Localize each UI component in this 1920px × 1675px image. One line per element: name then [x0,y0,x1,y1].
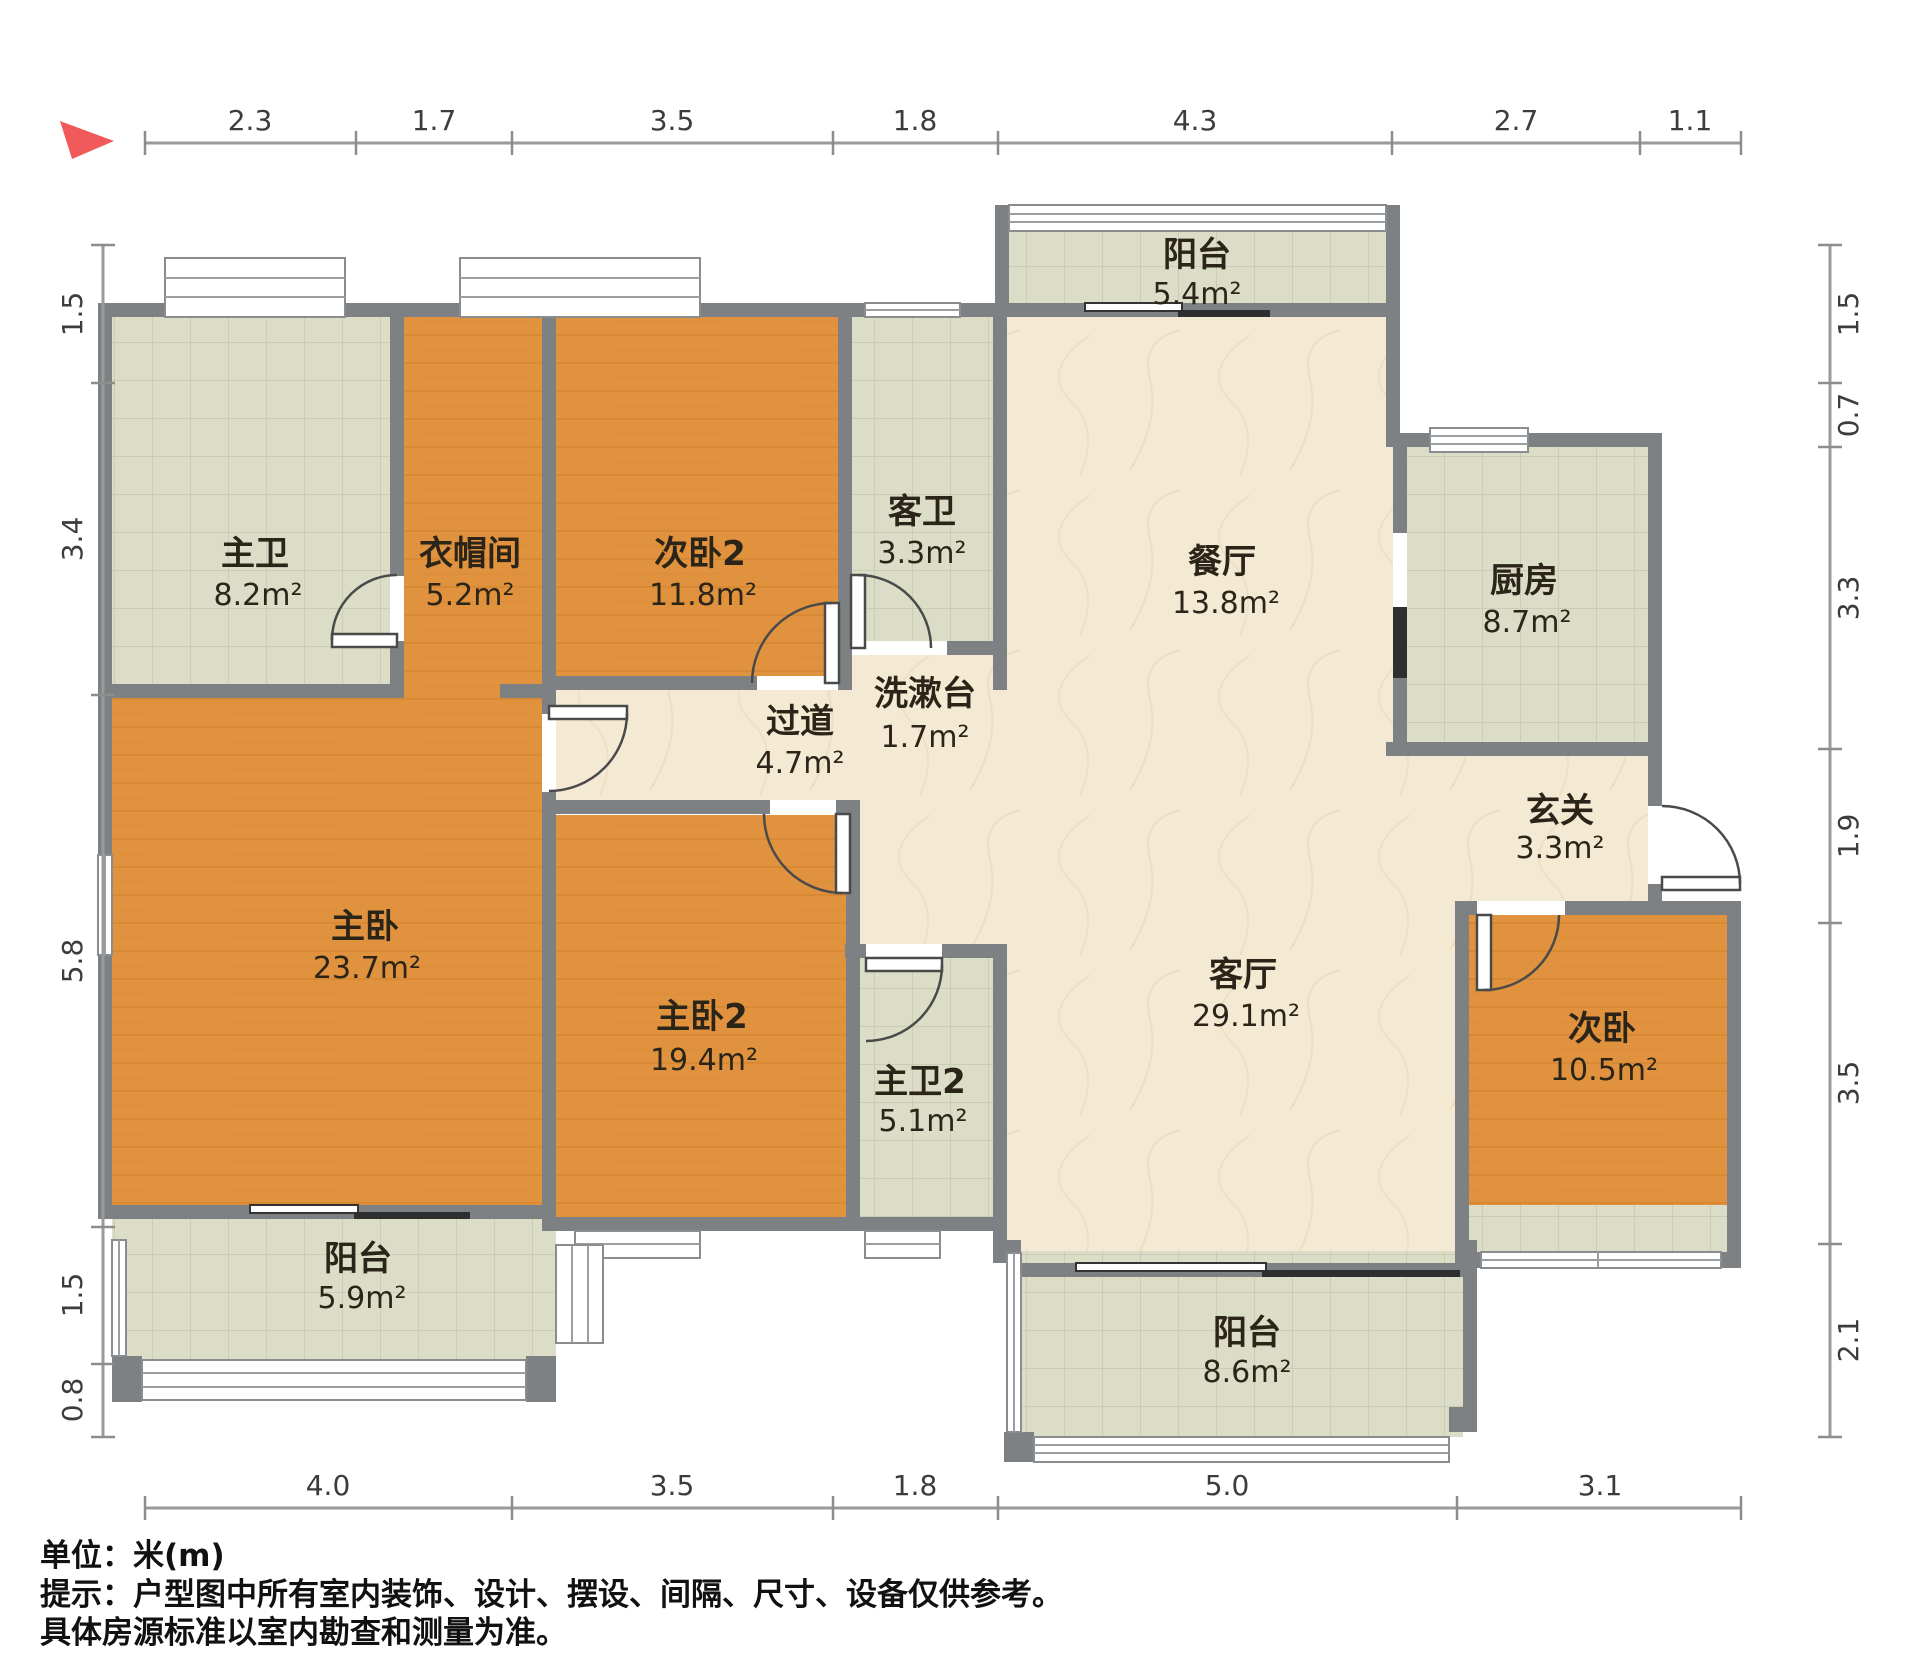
dim-left-1: 1.5 [56,292,89,337]
room-area-washstand: 1.7m² [881,720,970,755]
room-area-cloakroom: 5.2m² [426,578,515,613]
post-balcony-bottom-a [1004,1240,1021,1254]
kitchen-flue [1393,607,1407,678]
wall-kitchen-bottom [1386,742,1662,756]
window-balcony-left-east [556,1245,603,1343]
dim-top-7: 1.1 [1668,104,1713,137]
window-guest-bath [865,303,960,317]
room-area-bedroom2: 10.5m² [1550,1053,1658,1088]
window-balcony-left-rail [142,1360,526,1400]
room-label-guest-bath: 客卫 [888,492,956,532]
room-label-living: 客厅 [1209,955,1277,995]
opening-kitchen-window [1393,533,1407,607]
north-arrow-icon [60,121,114,159]
window-master-bath2-under [865,1231,940,1258]
dim-bottom-1: 4.0 [306,1469,351,1502]
room-label-master-bedroom2: 主卧2 [656,997,748,1037]
room-label-foyer: 玄关 [1526,791,1594,831]
opening-bedroom2 [1477,901,1565,915]
post-balcony-top-left [995,205,1009,317]
post-bay-right [1721,1252,1741,1268]
dim-top-4: 1.8 [893,104,938,137]
floorplan-page: 阳台 5.4m² 主卫 8.2m² 衣帽间 5.2m² 次卧2 11.8m² 客… [0,0,1920,1675]
dim-bottom-4: 5.0 [1205,1469,1250,1502]
room-area-foyer: 3.3m² [1516,831,1605,866]
window-master-bath-bay [165,258,345,317]
dim-left-4: 1.5 [56,1273,89,1318]
room-bedroom2-2-floor [556,317,838,676]
dim-top-3: 3.5 [650,104,695,137]
wall-bedroom2-right [1727,901,1741,1268]
room-label-washstand: 洗漱台 [874,674,976,714]
room-area-dining: 13.8m² [1172,586,1280,621]
dim-left-5: 0.8 [56,1378,89,1423]
dim-right-6: 2.1 [1832,1318,1865,1363]
dim-right-4: 1.9 [1832,814,1865,859]
wall-dining-right-upper [1386,303,1400,447]
room-area-living: 29.1m² [1192,999,1300,1034]
opening-master-bedroom [542,714,556,792]
wall-left-outer [98,303,112,1219]
footer-notes: 单位：米(m) 提示：户型图中所有室内装饰、设计、摆设、间隔、尺寸、设备仅供参考… [40,1538,1063,1651]
wall-bedroom2-left [1455,901,1469,1263]
note-unit: 单位：米(m) [40,1538,225,1574]
room-label-kitchen: 厨房 [1490,561,1558,601]
room-label-hallway: 过道 [766,702,834,742]
room-area-guest-bath: 3.3m² [878,536,967,571]
post-balcony-left-b [526,1356,556,1402]
window-master-bedroom-left [98,855,112,955]
window-bedroom2-2-bay [460,258,700,317]
room-area-balcony-top: 5.4m² [1153,277,1242,312]
post-balcony-bottom-b [1004,1432,1034,1462]
dim-top-1: 2.3 [228,104,273,137]
wall-master-bath2-left [846,958,860,1231]
room-label-balcony-bottom: 阳台 [1213,1313,1281,1353]
room-label-balcony-top: 阳台 [1163,235,1231,275]
room-label-master-bedroom: 主卧 [331,907,399,947]
opening-master-bath2 [866,944,942,958]
dim-top-2: 1.7 [412,104,457,137]
room-area-kitchen: 8.7m² [1483,605,1572,640]
room-area-master-bedroom: 23.7m² [313,951,421,986]
room-area-balcony-bottom: 8.6m² [1203,1355,1292,1390]
room-label-balcony-left: 阳台 [324,1239,392,1279]
post-bay-left [1469,1252,1481,1268]
room-label-bedroom2: 次卧 [1568,1009,1636,1049]
opening-master-bedroom2 [770,800,836,814]
room-dining-living-floor [1007,317,1393,1263]
dim-bottom-3: 1.8 [893,1469,938,1502]
room-area-master-bath: 8.2m² [214,578,303,613]
window-balcony-top-rail [1009,205,1386,231]
room-area-master-bath2: 5.1m² [879,1104,968,1139]
room-area-hallway: 4.7m² [756,746,845,781]
dimension-bottom: 4.0 3.5 1.8 5.0 3.1 [145,1469,1741,1520]
dimension-top: 2.3 1.7 3.5 1.8 4.3 2.7 1.1 [145,104,1741,155]
door-entry [1662,806,1740,890]
window-kitchen [1430,428,1528,452]
room-area-bedroom2-2: 11.8m² [649,578,757,613]
room-label-master-bath2: 主卫2 [874,1062,966,1102]
dim-right-5: 3.5 [1832,1061,1865,1106]
note-tip-line1: 提示：户型图中所有室内装饰、设计、摆设、间隔、尺寸、设备仅供参考。 [40,1577,1063,1613]
dim-bottom-2: 3.5 [650,1469,695,1502]
room-master-bath-floor [112,317,390,684]
dim-right-3: 3.3 [1832,576,1865,621]
room-cloakroom-floor [404,317,542,684]
room-area-balcony-left: 5.9m² [318,1281,407,1316]
window-bedroom2-bay [1481,1252,1721,1268]
wall-master-bath2-bottom [838,1217,1007,1231]
dim-top-6: 2.7 [1494,104,1539,137]
room-label-master-bath: 主卫 [221,534,289,574]
post-balcony-left-a [112,1356,142,1402]
wall-dining-left [993,303,1007,690]
dim-bottom-5: 3.1 [1578,1469,1623,1502]
opening-entry [1648,806,1662,884]
wall-master-bedroom2-bottom [542,1217,860,1231]
post-balcony-bottom-c [1449,1407,1477,1432]
window-balcony-bottom-rail [1034,1437,1449,1462]
dim-right-1: 1.5 [1832,292,1865,337]
hallway-extension-floor [860,800,1007,950]
wall-living-left [993,944,1007,1263]
wall-master-bath-bottom [98,684,404,698]
room-foyer-floor [1393,756,1648,901]
room-guest-bath-floor [852,317,993,641]
room-label-dining: 餐厅 [1188,542,1256,582]
dim-left-3: 5.8 [56,939,89,984]
floorplan-canvas: 阳台 5.4m² 主卫 8.2m² 衣帽间 5.2m² 次卧2 11.8m² 客… [0,0,1920,1675]
window-balcony-bottom-side [1007,1253,1021,1432]
dimension-right: 1.5 0.7 3.3 1.9 3.5 2.1 [1818,245,1865,1437]
room-label-cloakroom: 衣帽间 [419,534,521,574]
room-area-master-bedroom2: 19.4m² [650,1043,758,1078]
bedroom2-bay-floor [1469,1205,1727,1252]
dim-top-5: 4.3 [1173,104,1218,137]
room-label-bedroom2-2: 次卧2 [654,534,746,574]
window-balcony-left-side [112,1240,126,1356]
post-balcony-top-right [1386,205,1400,317]
opening-master-bath [390,576,404,641]
dim-left-2: 3.4 [56,517,89,562]
note-tip-line2: 具体房源标准以室内勘查和测量为准。 [40,1615,567,1651]
dim-right-2: 0.7 [1832,393,1865,438]
living-east-strip-floor [1393,901,1463,1263]
